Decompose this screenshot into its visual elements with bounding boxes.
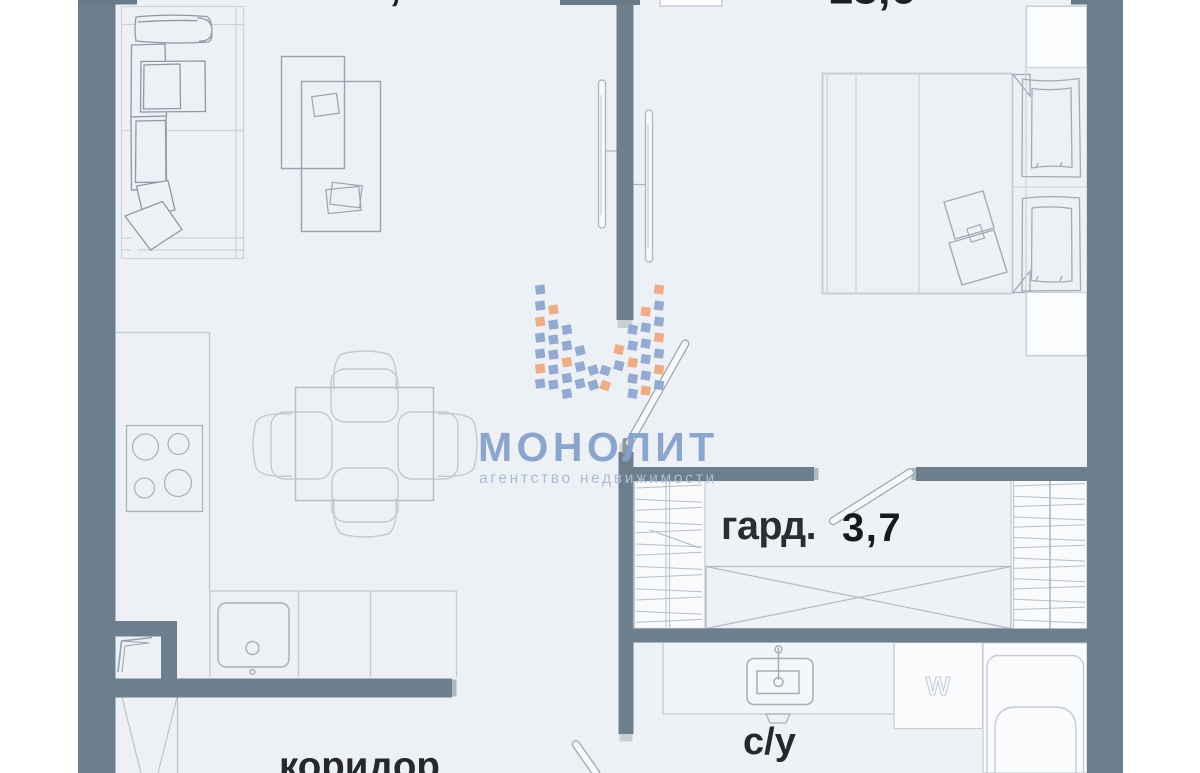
svg-text:с/у: с/у [743,721,796,763]
svg-text:агентство недвижимости: агентство недвижимости [479,470,717,487]
svg-text:13,6: 13,6 [828,0,916,14]
svg-text:коридор: коридор [279,745,440,773]
svg-text:3,7: 3,7 [842,506,902,550]
svg-text:гард.: гард. [721,504,816,548]
svg-text:17,3: 17,3 [340,0,426,10]
svg-text:W: W [926,671,951,701]
svg-text:МОНОЛИТ: МОНОЛИТ [478,424,719,470]
